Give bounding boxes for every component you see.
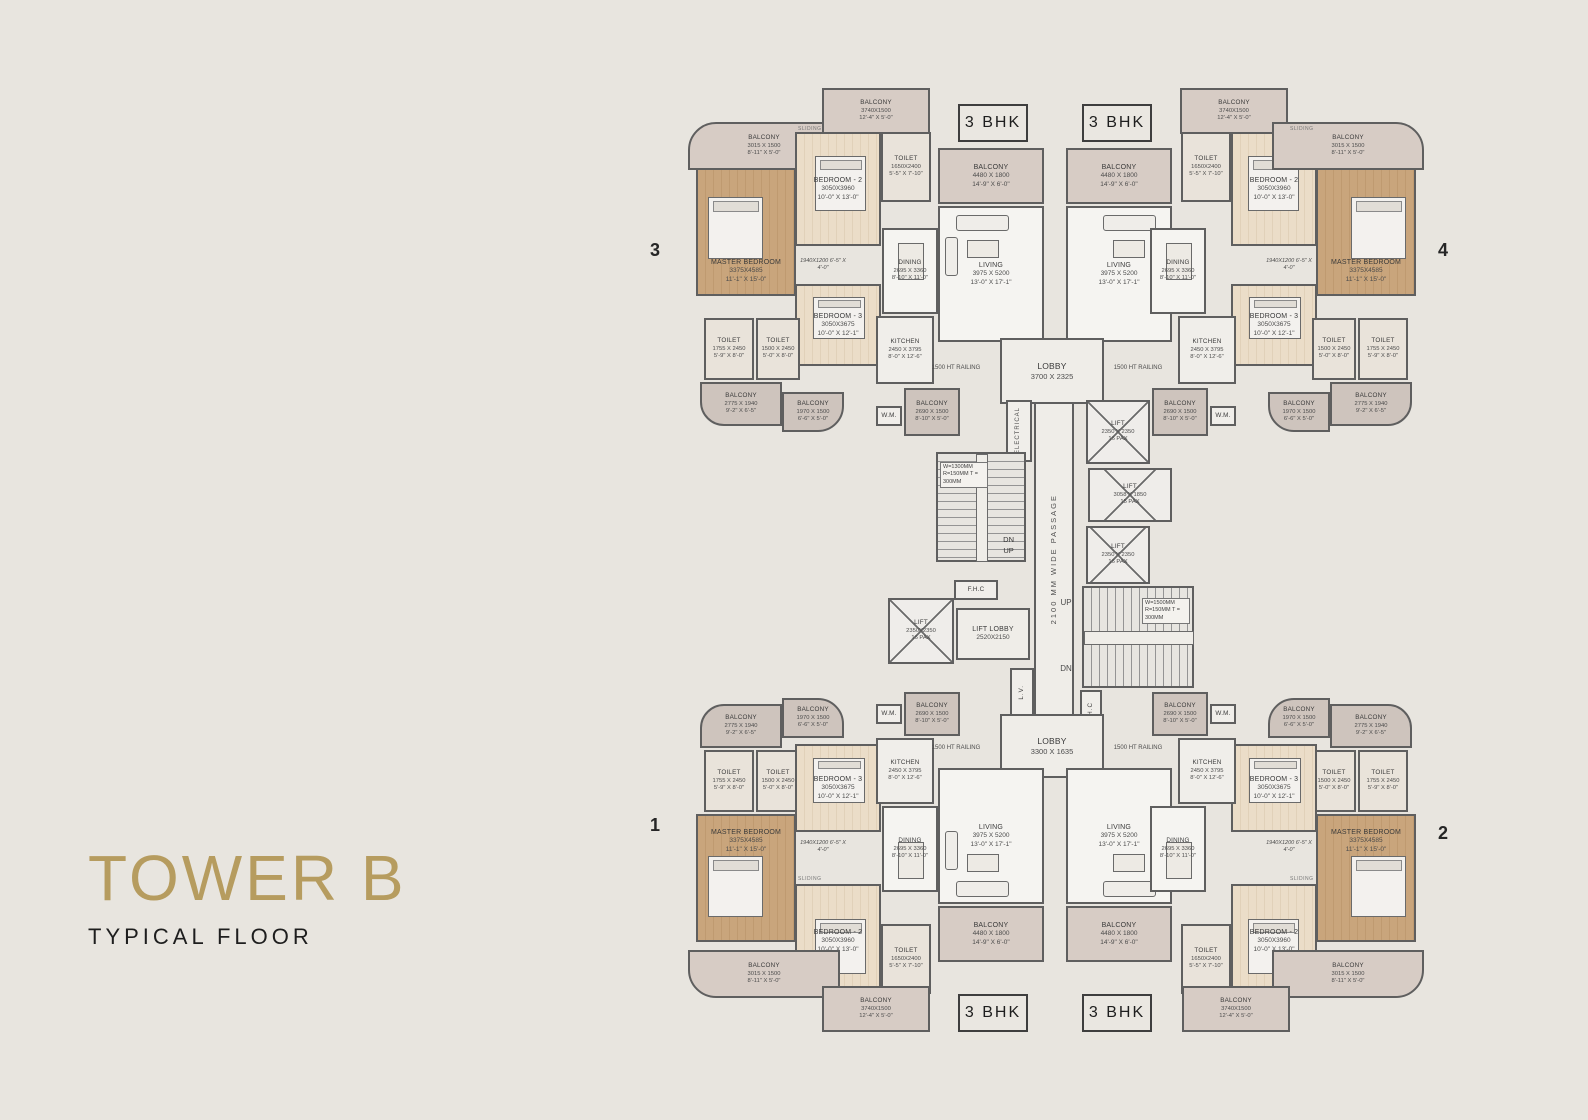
room-wm-u4: W.M. <box>1210 406 1236 426</box>
room-name: LIFT <box>914 619 928 627</box>
room-dim-mm: 2775 X 1940 <box>725 401 758 409</box>
room-toilet-master-b-u3: TOILET 1500 X 2450 5'-0" X 8'-0" <box>756 318 800 380</box>
room-name: TOILET <box>894 947 917 955</box>
room-dim-mm: 3740X1500 <box>1219 108 1249 116</box>
room-dim-ft: 11'-1" X 15'-0" <box>1346 846 1387 854</box>
room-living-u3: LIVING 3975 X 5200 13'-0" X 17'-1" <box>938 206 1044 342</box>
room-name: BEDROOM - 3 <box>814 775 862 784</box>
room-dim-mm: 1940X1200 <box>800 258 828 264</box>
room-name: TOILET <box>1194 947 1217 955</box>
room-dim-mm: 2775 X 1940 <box>1355 401 1388 409</box>
room-dim-mm: 1970 X 1500 <box>1283 409 1316 417</box>
room-dim-ft: 14'-9" X 6'-0" <box>1100 939 1137 947</box>
room-balcony-kitchen-u1: BALCONY 2690 X 1500 8'-10" X 5'-0" <box>904 692 960 736</box>
unit-type-tag-top-right: 3 BHK <box>1082 104 1152 142</box>
room-bedroom3-u2: BEDROOM - 3 3050X3675 10'-0" X 12'-1" <box>1231 744 1317 832</box>
room-name: W.M. <box>1215 412 1230 420</box>
room-name: TOILET <box>894 155 917 163</box>
room-name: BALCONY <box>916 400 948 408</box>
room-dim-ft: 8'-11" X 5'-0" <box>1332 978 1365 986</box>
room-dim-ft: 5'-5" X 7'-10" <box>889 171 922 179</box>
room-dim-mm: 1500 X 2450 <box>762 778 795 786</box>
room-dim-mm: 2695 X 3360 <box>894 268 927 276</box>
room-toilet-master-a-u3: TOILET 1755 X 2450 5'-9" X 8'-0" <box>704 318 754 380</box>
room-balcony-toilet-u2: BALCONY 2775 X 1940 9'-2" X 6'-5" <box>1330 704 1412 748</box>
room-name: MASTER BEDROOM <box>1331 258 1401 267</box>
room-balcony-living-u1: BALCONY 4480 X 1800 14'-9" X 6'-0" <box>938 906 1044 962</box>
room-dim-mm: 3050X3960 <box>821 185 854 193</box>
room-dim-mm: 1940X1200 <box>800 840 828 846</box>
room-master-bedroom-u1: MASTER BEDROOM 3375X4585 11'-1" X 15'-0" <box>696 814 796 942</box>
room-name: TOILET <box>1371 769 1394 777</box>
room-dim-ft: 6'-6" X 5'-0" <box>798 416 828 424</box>
dn-label: DN <box>1003 534 1014 545</box>
room-dim-mm: 3975 X 5200 <box>973 832 1010 840</box>
coffee-table <box>967 854 1000 872</box>
bed <box>1351 197 1407 259</box>
room-dim-ft: 8'-11" X 5'-0" <box>748 978 781 986</box>
room-name: BALCONY <box>797 706 829 714</box>
room-dim-ft: 9'-2" X 6'-5" <box>726 730 756 738</box>
room-dim-mm: 2695 X 3360 <box>1162 846 1195 854</box>
room-dining-u1: DINING 2695 X 3360 8'-10" X 11'-0" <box>882 806 938 892</box>
room-dim-mm: 3300 X 1635 <box>1031 747 1074 757</box>
room-dim-mm: 3740X1500 <box>1221 1006 1251 1014</box>
room-name: BALCONY <box>1218 99 1250 107</box>
up-label: UP <box>1003 545 1014 556</box>
sliding-door-label: SLIDING <box>798 876 822 882</box>
room-dim-ft: 9'-2" X 6'-5" <box>1356 408 1386 416</box>
room-name: LIVING <box>1107 823 1131 832</box>
room-dim-mm: 2450 X 3795 <box>889 347 922 355</box>
room-dim-ft: 8'-0" X 12'-6" <box>1190 775 1223 783</box>
room-kitchen-u4: KITCHEN 2450 X 3795 8'-0" X 12'-6" <box>1178 316 1236 384</box>
room-dim-ft: 11'-1" X 15'-0" <box>726 846 767 854</box>
room-kitchen-u1: KITCHEN 2450 X 3795 8'-0" X 12'-6" <box>876 738 934 804</box>
room-name: BALCONY <box>1332 962 1364 970</box>
room-living-u1: LIVING 3975 X 5200 13'-0" X 17'-1" <box>938 768 1044 904</box>
room-dim-ft: 14'-9" X 6'-0" <box>972 181 1009 189</box>
room-dim-mm: 3050X3675 <box>821 784 854 792</box>
room-name: BALCONY <box>1332 134 1364 142</box>
room-name: W.M. <box>1215 710 1230 718</box>
railing-label-bottom-left: 1500 HT RAILING <box>930 744 982 752</box>
room-balcony-master-u2: BALCONY 3015 X 1500 8'-11" X 5'-0" <box>1272 950 1424 998</box>
room-name: BEDROOM - 3 <box>1250 312 1298 321</box>
room-dim-ft: 14'-9" X 6'-0" <box>1100 181 1137 189</box>
room-dim-ft: 8'-10" X 11'-0" <box>1160 275 1196 283</box>
room-name: BEDROOM - 2 <box>814 928 862 937</box>
room-dim-mm: 2690 X 1500 <box>916 711 949 719</box>
room-dim-ft: 10'-0" X 12'-1" <box>817 793 858 801</box>
railing-label-top-left: 1500 HT RAILING <box>930 364 982 372</box>
room-toilet-master-b-u2: TOILET 1500 X 2450 5'-0" X 8'-0" <box>1312 750 1356 812</box>
coffee-table <box>1113 240 1146 258</box>
room-dim-ft: 13'-0" X 17'-1" <box>970 841 1011 849</box>
room-name: BALCONY <box>1355 392 1387 400</box>
room-toilet-common-u2: TOILET 1650X2400 5'-5" X 7'-10" <box>1181 924 1231 994</box>
room-dim-ft: 8'-10" X 11'-0" <box>1160 853 1196 861</box>
room-name: BALCONY <box>797 400 829 408</box>
room-dim-ft: 5'-0" X 8'-0" <box>763 785 793 793</box>
dress-dim-u4: 1940X1200 6'-5" X 4'-0" <box>1260 258 1318 272</box>
room-dim-mm: 2690 X 1500 <box>1164 711 1197 719</box>
room-name: KITCHEN <box>890 338 919 346</box>
room-dining-u3: DINING 2695 X 3360 8'-10" X 11'-0" <box>882 228 938 314</box>
railing-label-bottom-right: 1500 HT RAILING <box>1112 744 1164 752</box>
room-toilet-common-u1: TOILET 1650X2400 5'-5" X 7'-10" <box>881 924 931 994</box>
room-toilet-master-a-u1: TOILET 1755 X 2450 5'-9" X 8'-0" <box>704 750 754 812</box>
room-dim-mm: 3375X4585 <box>1349 267 1382 275</box>
room-dim-mm: 3050X3960 <box>1257 185 1290 193</box>
room-dim-mm: 3050X3675 <box>821 321 854 329</box>
sofa <box>956 881 1009 898</box>
room-dim-mm: 3375X4585 <box>1349 837 1382 845</box>
room-name: LIVING <box>979 261 1003 270</box>
room-name: KITCHEN <box>1192 759 1221 767</box>
dress-dim-u1: 1940X1200 6'-5" X 4'-0" <box>794 840 852 854</box>
room-name: BALCONY <box>1164 400 1196 408</box>
room-dim-ft: 12'-4" X 5'-0" <box>1219 1013 1252 1021</box>
room-dim-mm: 2350 X 2350 <box>1102 429 1135 437</box>
up-label-right: UP <box>1052 598 1080 607</box>
room-name: W.M. <box>881 710 896 718</box>
room-dim-mm: 2775 X 1940 <box>725 723 758 731</box>
room-name: BALCONY <box>916 702 948 710</box>
room-dim-ft: 13'-0" X 17'-1" <box>1098 279 1139 287</box>
dress-dim-u3: 1940X1200 6'-5" X 4'-0" <box>794 258 852 272</box>
room-name: TOILET <box>766 337 789 345</box>
room-balcony-living-u2: BALCONY 4480 X 1800 14'-9" X 6'-0" <box>1066 906 1172 962</box>
room-name: LIFT <box>1111 420 1125 428</box>
room-dim-mm: 2450 X 3795 <box>1191 768 1224 776</box>
room-toilet-master-b-u1: TOILET 1500 X 2450 5'-0" X 8'-0" <box>756 750 800 812</box>
room-dim-ft: 5'-0" X 8'-0" <box>1319 353 1349 361</box>
room-dim-mm: 1650X2400 <box>1191 956 1221 964</box>
core-staircase-left: W=1300MM R=150MM T = 300MM DN UP <box>936 452 1026 562</box>
room-dim-mm: 4480 X 1800 <box>1101 930 1138 938</box>
room-dim-ft: 11'-1" X 15'-0" <box>1346 276 1387 284</box>
room-dim-mm: 2695 X 3360 <box>1162 268 1195 276</box>
dn-label-right: DN <box>1052 664 1080 673</box>
sliding-door-label: SLIDING <box>1290 126 1314 132</box>
stair-landing <box>1084 631 1194 645</box>
coffee-table <box>967 240 1000 258</box>
room-name: BEDROOM - 3 <box>814 312 862 321</box>
room-name: LIFT LOBBY <box>972 625 1014 634</box>
room-toilet-master-b-u4: TOILET 1500 X 2450 5'-0" X 8'-0" <box>1312 318 1356 380</box>
lift-capacity: 16 PAX <box>1108 436 1127 444</box>
room-dim-mm: 1755 X 2450 <box>713 346 746 354</box>
room-bedroom3-u3: BEDROOM - 3 3050X3675 10'-0" X 12'-1" <box>795 284 881 366</box>
room-dim-ft: 10'-0" X 13'-0" <box>817 194 858 202</box>
room-name: L.V. <box>1018 685 1026 700</box>
bed <box>708 856 764 918</box>
room-dim-ft: 8'-10" X 5'-0" <box>1163 416 1196 424</box>
room-dim-ft: 10'-0" X 12'-1" <box>1253 330 1294 338</box>
room-name: KITCHEN <box>890 759 919 767</box>
room-dim-mm: 3058 X 1850 <box>1114 492 1147 500</box>
room-bedroom3-u4: BEDROOM - 3 3050X3675 10'-0" X 12'-1" <box>1231 284 1317 366</box>
room-wm-u1: W.M. <box>876 704 902 724</box>
room-balcony-bed2-u1: BALCONY 3740X1500 12'-4" X 5'-0" <box>822 986 930 1032</box>
sofa <box>1103 215 1156 232</box>
room-balcony-kitchen-u4: BALCONY 2690 X 1500 8'-10" X 5'-0" <box>1152 388 1208 436</box>
room-dim-ft: 8'-10" X 5'-0" <box>915 718 948 726</box>
core-fhc-left: F.H.C <box>954 580 998 600</box>
room-dim-mm: 1755 X 2450 <box>1367 346 1400 354</box>
room-dim-mm: 1755 X 2450 <box>1367 778 1400 786</box>
room-balcony-kitchen-u2: BALCONY 2690 X 1500 8'-10" X 5'-0" <box>1152 692 1208 736</box>
room-name: MASTER BEDROOM <box>1331 828 1401 837</box>
room-dim-ft: 5'-5" X 7'-10" <box>1189 171 1222 179</box>
room-name: LIVING <box>1107 261 1131 270</box>
dress-dim-u2: 1940X1200 6'-5" X 4'-0" <box>1260 840 1318 854</box>
room-name: BALCONY <box>725 392 757 400</box>
room-kitchen-u3: KITCHEN 2450 X 3795 8'-0" X 12'-6" <box>876 316 934 384</box>
sofa <box>945 237 958 276</box>
room-master-bedroom-u2: MASTER BEDROOM 3375X4585 11'-1" X 15'-0" <box>1316 814 1416 942</box>
room-name: BALCONY <box>748 134 780 142</box>
room-dim-mm: 3740X1500 <box>861 108 891 116</box>
room-dim-mm: 3050X3960 <box>1257 937 1290 945</box>
tower-title: TOWER B <box>88 846 407 910</box>
room-dim-ft: 5'-9" X 8'-0" <box>1368 785 1398 793</box>
room-name: ELECTRICAL <box>1015 407 1023 454</box>
room-name: TOILET <box>1194 155 1217 163</box>
room-name: MASTER BEDROOM <box>711 828 781 837</box>
sofa <box>956 215 1009 232</box>
room-dim-mm: 3975 X 5200 <box>1101 832 1138 840</box>
room-dim-ft: 13'-0" X 17'-1" <box>970 279 1011 287</box>
room-dim-ft: 9'-2" X 6'-5" <box>726 408 756 416</box>
room-name: DINING <box>1166 259 1189 267</box>
room-dim-mm: 1650X2400 <box>891 164 921 172</box>
room-dim-ft: 8'-10" X 5'-0" <box>915 416 948 424</box>
room-dim-ft: 12'-4" X 5'-0" <box>859 115 892 123</box>
room-name: KITCHEN <box>1192 338 1221 346</box>
room-balcony-living-u4: BALCONY 4480 X 1800 14'-9" X 6'-0" <box>1066 148 1172 204</box>
core-lobby-top: LOBBY 3700 X 2325 <box>1000 338 1104 404</box>
room-dim-ft: 8'-11" X 5'-0" <box>748 150 781 158</box>
room-dim-ft: 8'-10" X 11'-0" <box>892 853 928 861</box>
room-name: TOILET <box>717 769 740 777</box>
room-dim-mm: 1940X1200 <box>1266 258 1294 264</box>
room-name: BALCONY <box>1355 714 1387 722</box>
stair-direction-labels: DN UP <box>1003 534 1014 557</box>
room-name: F.H.C <box>968 586 985 594</box>
floor-subtitle: TYPICAL FLOOR <box>88 924 407 950</box>
room-dim-mm: 1940X1200 <box>1266 840 1294 846</box>
room-dim-mm: 3050X3960 <box>821 937 854 945</box>
room-toilet-common-u4: TOILET 1650X2400 5'-5" X 7'-10" <box>1181 132 1231 202</box>
room-bedroom3-u1: BEDROOM - 3 3050X3675 10'-0" X 12'-1" <box>795 744 881 832</box>
room-dim-mm: 2350 X 2350 <box>1102 552 1135 560</box>
room-name: W.M. <box>881 412 896 420</box>
lift-capacity: 15 PAX <box>1120 499 1139 507</box>
room-dim-mm: 2350X2350 <box>906 628 936 636</box>
room-name: LIVING <box>979 823 1003 832</box>
room-dim-mm: 3975 X 5200 <box>973 270 1010 278</box>
room-name: TOILET <box>1371 337 1394 345</box>
room-dim-mm: 1755 X 2450 <box>713 778 746 786</box>
room-dim-mm: 3050X3675 <box>1257 784 1290 792</box>
room-dim-ft: 8'-11" X 5'-0" <box>1332 150 1365 158</box>
room-balcony-toilet-u1: BALCONY 2775 X 1940 9'-2" X 6'-5" <box>700 704 782 748</box>
room-name: LIFT <box>1111 543 1125 551</box>
room-name: BALCONY <box>974 163 1009 172</box>
room-dim-mm: 1650X2400 <box>1191 164 1221 172</box>
sofa <box>1103 881 1156 898</box>
room-dim-ft: 10'-0" X 13'-0" <box>1253 194 1294 202</box>
title-block: TOWER B TYPICAL FLOOR <box>88 846 407 950</box>
room-dim-mm: 1970 X 1500 <box>1283 715 1316 723</box>
room-dim-mm: 3015 X 1500 <box>1332 971 1365 979</box>
room-name: BALCONY <box>1102 163 1137 172</box>
room-name: BALCONY <box>748 962 780 970</box>
room-name: BALCONY <box>1283 706 1315 714</box>
room-dining-u4: DINING 2695 X 3360 8'-10" X 11'-0" <box>1150 228 1206 314</box>
room-dim-mm: 1500 X 2450 <box>1318 346 1351 354</box>
room-toilet-common-u3: TOILET 1650X2400 5'-5" X 7'-10" <box>881 132 931 202</box>
room-master-bedroom-u4: MASTER BEDROOM 3375X4585 11'-1" X 15'-0" <box>1316 168 1416 296</box>
room-name: LOBBY <box>1037 736 1066 747</box>
unit-type-tag-bottom-left: 3 BHK <box>958 994 1028 1032</box>
room-dim-ft: 6'-6" X 5'-0" <box>1284 722 1314 730</box>
room-balcony-master-u1: BALCONY 3015 X 1500 8'-11" X 5'-0" <box>688 950 840 998</box>
sofa <box>945 831 958 870</box>
room-kitchen-u2: KITCHEN 2450 X 3795 8'-0" X 12'-6" <box>1178 738 1236 804</box>
unit-number-2: 2 <box>1438 823 1448 844</box>
room-toilet-master-a-u2: TOILET 1755 X 2450 5'-9" X 8'-0" <box>1358 750 1408 812</box>
room-master-bedroom-u3: MASTER BEDROOM 3375X4585 11'-1" X 15'-0" <box>696 168 796 296</box>
lift-capacity: 16 PAX <box>911 635 930 643</box>
room-dim-mm: 4480 X 1800 <box>973 930 1010 938</box>
unit-number-4: 4 <box>1438 240 1448 261</box>
room-dim-mm: 3015 X 1500 <box>748 971 781 979</box>
room-dim-ft: 14'-9" X 6'-0" <box>972 939 1009 947</box>
room-name: BEDROOM - 2 <box>1250 176 1298 185</box>
unit-type-tag-bottom-right: 3 BHK <box>1082 994 1152 1032</box>
room-name: BALCONY <box>860 997 892 1005</box>
room-dim-mm: 3975 X 5200 <box>1101 270 1138 278</box>
room-name: DINING <box>898 259 921 267</box>
room-dim-ft: 5'-9" X 8'-0" <box>714 785 744 793</box>
room-name: BALCONY <box>860 99 892 107</box>
room-balcony-kitchen-u3: BALCONY 2690 X 1500 8'-10" X 5'-0" <box>904 388 960 436</box>
room-name: BALCONY <box>1102 921 1137 930</box>
railing-label-top-right: 1500 HT RAILING <box>1112 364 1164 372</box>
core-lift-lobby: LIFT LOBBY 2520X2150 <box>956 608 1030 660</box>
room-name: BALCONY <box>1164 702 1196 710</box>
room-dim-ft: 6'-6" X 5'-0" <box>798 722 828 730</box>
room-dim-ft: 5'-5" X 7'-10" <box>1189 963 1222 971</box>
room-dim-ft: 12'-4" X 5'-0" <box>859 1013 892 1021</box>
room-dim-mm: 1500 X 2450 <box>1318 778 1351 786</box>
room-balcony-living-u3: BALCONY 4480 X 1800 14'-9" X 6'-0" <box>938 148 1044 204</box>
room-dim-ft: 5'-9" X 8'-0" <box>714 353 744 361</box>
sliding-door-label: SLIDING <box>1290 876 1314 882</box>
room-name: BEDROOM - 3 <box>1250 775 1298 784</box>
room-toilet-master-a-u4: TOILET 1755 X 2450 5'-9" X 8'-0" <box>1358 318 1408 380</box>
room-dim-mm: 2695 X 3360 <box>894 846 927 854</box>
room-dim-ft: 8'-0" X 12'-6" <box>888 775 921 783</box>
room-dim-ft: 10'-0" X 12'-1" <box>1253 793 1294 801</box>
core-staircase-right: W=1500MM R=150MM T = 300MM <box>1082 586 1194 688</box>
room-name: BALCONY <box>1283 400 1315 408</box>
room-name: TOILET <box>717 337 740 345</box>
room-dim-ft: 5'-0" X 8'-0" <box>1319 785 1349 793</box>
room-wm-u2: W.M. <box>1210 704 1236 724</box>
room-wm-u3: W.M. <box>876 406 902 426</box>
room-name: LOBBY <box>1037 361 1066 372</box>
room-balcony-toilet-u4: BALCONY 2775 X 1940 9'-2" X 6'-5" <box>1330 382 1412 426</box>
room-dim-mm: 4480 X 1800 <box>973 172 1010 180</box>
room-dim-ft: 8'-10" X 5'-0" <box>1163 718 1196 726</box>
room-name: MASTER BEDROOM <box>711 258 781 267</box>
room-balcony-bed3-u1: BALCONY 1970 X 1500 6'-6" X 5'-0" <box>782 698 844 738</box>
room-dim-mm: 2690 X 1500 <box>1164 409 1197 417</box>
room-dim-ft: 12'-4" X 5'-0" <box>1217 115 1250 123</box>
core-lv-shaft: L.V. <box>1010 668 1034 716</box>
room-dim-mm: 1650X2400 <box>891 956 921 964</box>
room-dim-ft: 6'-6" X 5'-0" <box>1284 416 1314 424</box>
core-lift-1: LIFT 2350 X 2350 16 PAX <box>1086 400 1150 464</box>
core-lift-3: LIFT 2350 X 2350 16 PAX <box>1086 526 1150 584</box>
room-dim-ft: 5'-5" X 7'-10" <box>889 963 922 971</box>
room-balcony-toilet-u3: BALCONY 2775 X 1940 9'-2" X 6'-5" <box>700 382 782 426</box>
room-bedroom2-u3: BEDROOM - 2 3050X3960 10'-0" X 13'-0" <box>795 132 881 246</box>
room-dim-ft: 10'-0" X 12'-1" <box>817 330 858 338</box>
room-name: BALCONY <box>1220 997 1252 1005</box>
room-dim-ft: 8'-10" X 11'-0" <box>892 275 928 283</box>
room-dim-mm: 3740X1500 <box>861 1006 891 1014</box>
unit-number-1: 1 <box>650 815 660 836</box>
room-dim-ft: 9'-2" X 6'-5" <box>1356 730 1386 738</box>
room-dim-mm: 1970 X 1500 <box>797 409 830 417</box>
bed <box>1351 856 1407 918</box>
room-dining-u2: DINING 2695 X 3360 8'-10" X 11'-0" <box>1150 806 1206 892</box>
stair-note-right: W=1500MM R=150MM T = 300MM <box>1142 598 1190 624</box>
room-dim-mm: 3375X4585 <box>729 267 762 275</box>
room-dim-mm: 2775 X 1940 <box>1355 723 1388 731</box>
room-name: BEDROOM - 2 <box>814 176 862 185</box>
room-name: BALCONY <box>974 921 1009 930</box>
room-dim-mm: 2450 X 3795 <box>889 768 922 776</box>
room-dim-ft: 8'-0" X 12'-6" <box>1190 354 1223 362</box>
coffee-table <box>1113 854 1146 872</box>
room-dim-mm: 3050X3675 <box>1257 321 1290 329</box>
room-balcony-bed2-u3: BALCONY 3740X1500 12'-4" X 5'-0" <box>822 88 930 134</box>
unit-type-tag-top-left: 3 BHK <box>958 104 1028 142</box>
room-balcony-bed3-u4: BALCONY 1970 X 1500 6'-6" X 5'-0" <box>1268 392 1330 432</box>
room-dim-ft: 5'-9" X 8'-0" <box>1368 353 1398 361</box>
room-dim-ft: 13'-0" X 17'-1" <box>1098 841 1139 849</box>
room-name: DINING <box>898 837 921 845</box>
stair-note-left: W=1300MM R=150MM T = 300MM <box>940 462 988 488</box>
room-balcony-bed2-u2: BALCONY 3740X1500 12'-4" X 5'-0" <box>1182 986 1290 1032</box>
room-dim-mm: 3375X4585 <box>729 837 762 845</box>
room-balcony-bed3-u2: BALCONY 1970 X 1500 6'-6" X 5'-0" <box>1268 698 1330 738</box>
bed <box>708 197 764 259</box>
room-name: BEDROOM - 2 <box>1250 928 1298 937</box>
room-dim-mm: 2450 X 3795 <box>1191 347 1224 355</box>
floor-plan-canvas: TOWER B TYPICAL FLOOR 3 4 1 2 3 BHK 3 BH… <box>0 0 1588 1120</box>
room-dim-mm: 3015 X 1500 <box>748 143 781 151</box>
sliding-door-label: SLIDING <box>798 126 822 132</box>
core-lift-4: LIFT 2350X2350 16 PAX <box>888 598 954 664</box>
room-balcony-bed3-u3: BALCONY 1970 X 1500 6'-6" X 5'-0" <box>782 392 844 432</box>
